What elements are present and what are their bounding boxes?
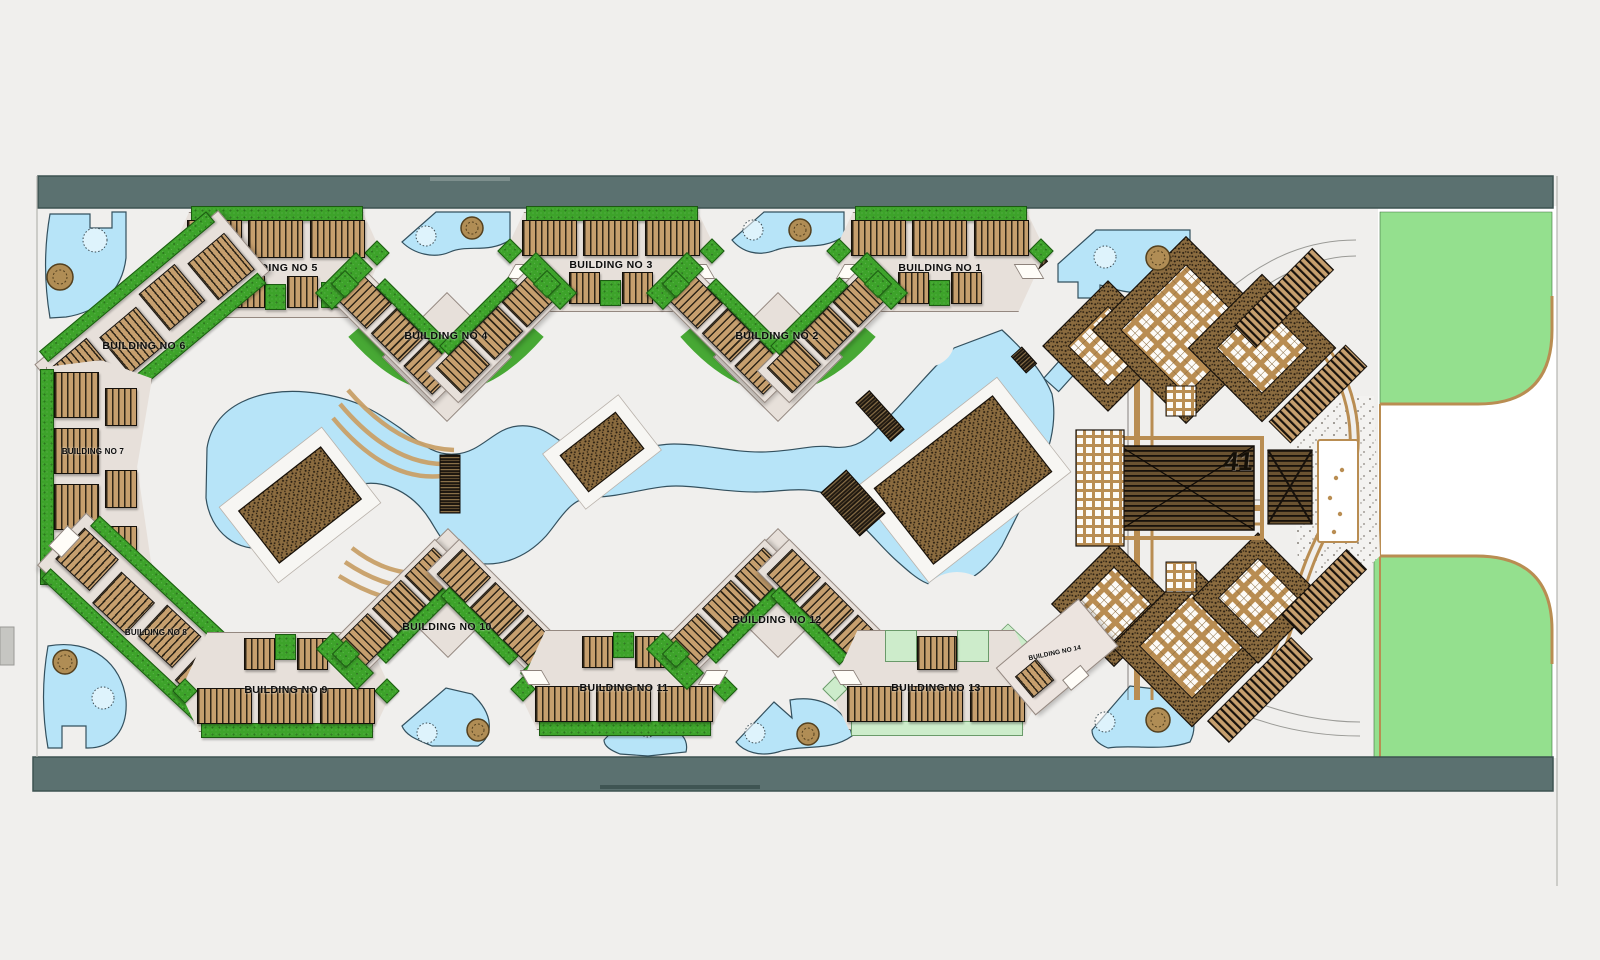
site-plan: BUILDING NO 5 BUILDING NO 3 BUILDING NO … xyxy=(0,0,1600,960)
building-7-label: BUILDING NO 7 xyxy=(62,448,124,456)
west-pavilion xyxy=(1076,430,1124,546)
curb-block xyxy=(0,627,14,665)
building-3-label: BUILDING NO 3 xyxy=(569,260,652,271)
court-square-s xyxy=(1166,562,1196,592)
road-top xyxy=(38,176,1553,208)
building-12-label: BUILDING NO 12 xyxy=(732,615,822,626)
building-9-label: BUILDING NO 9 xyxy=(244,685,327,696)
building-6-label: BUILDING NO 6 xyxy=(102,341,185,352)
building-14: BUILDING NO 14 xyxy=(995,600,1120,712)
building-2-label: BUILDING NO 2 xyxy=(735,331,818,342)
plaza xyxy=(1318,440,1358,542)
building-11-label: BUILDING NO 11 xyxy=(579,683,668,694)
court-square-n xyxy=(1166,386,1196,416)
road-bottom xyxy=(33,757,1553,791)
building-4: BUILDING NO 4 xyxy=(337,268,555,402)
building-2: BUILDING NO 2 xyxy=(668,268,886,402)
bridge-center xyxy=(440,455,460,513)
lawn-north xyxy=(1380,212,1552,404)
building-8-label: BUILDING NO 8 xyxy=(125,629,187,637)
building-13-label: BUILDING NO 13 xyxy=(891,683,981,694)
building-10-label: BUILDING NO 10 xyxy=(402,622,492,633)
lawn-south xyxy=(1374,556,1552,758)
ground-layer xyxy=(0,0,1600,960)
building-1-label: BUILDING NO 1 xyxy=(898,263,981,274)
main-hall-number: 41 xyxy=(1222,446,1254,477)
building-4-label: BUILDING NO 4 xyxy=(404,331,487,342)
